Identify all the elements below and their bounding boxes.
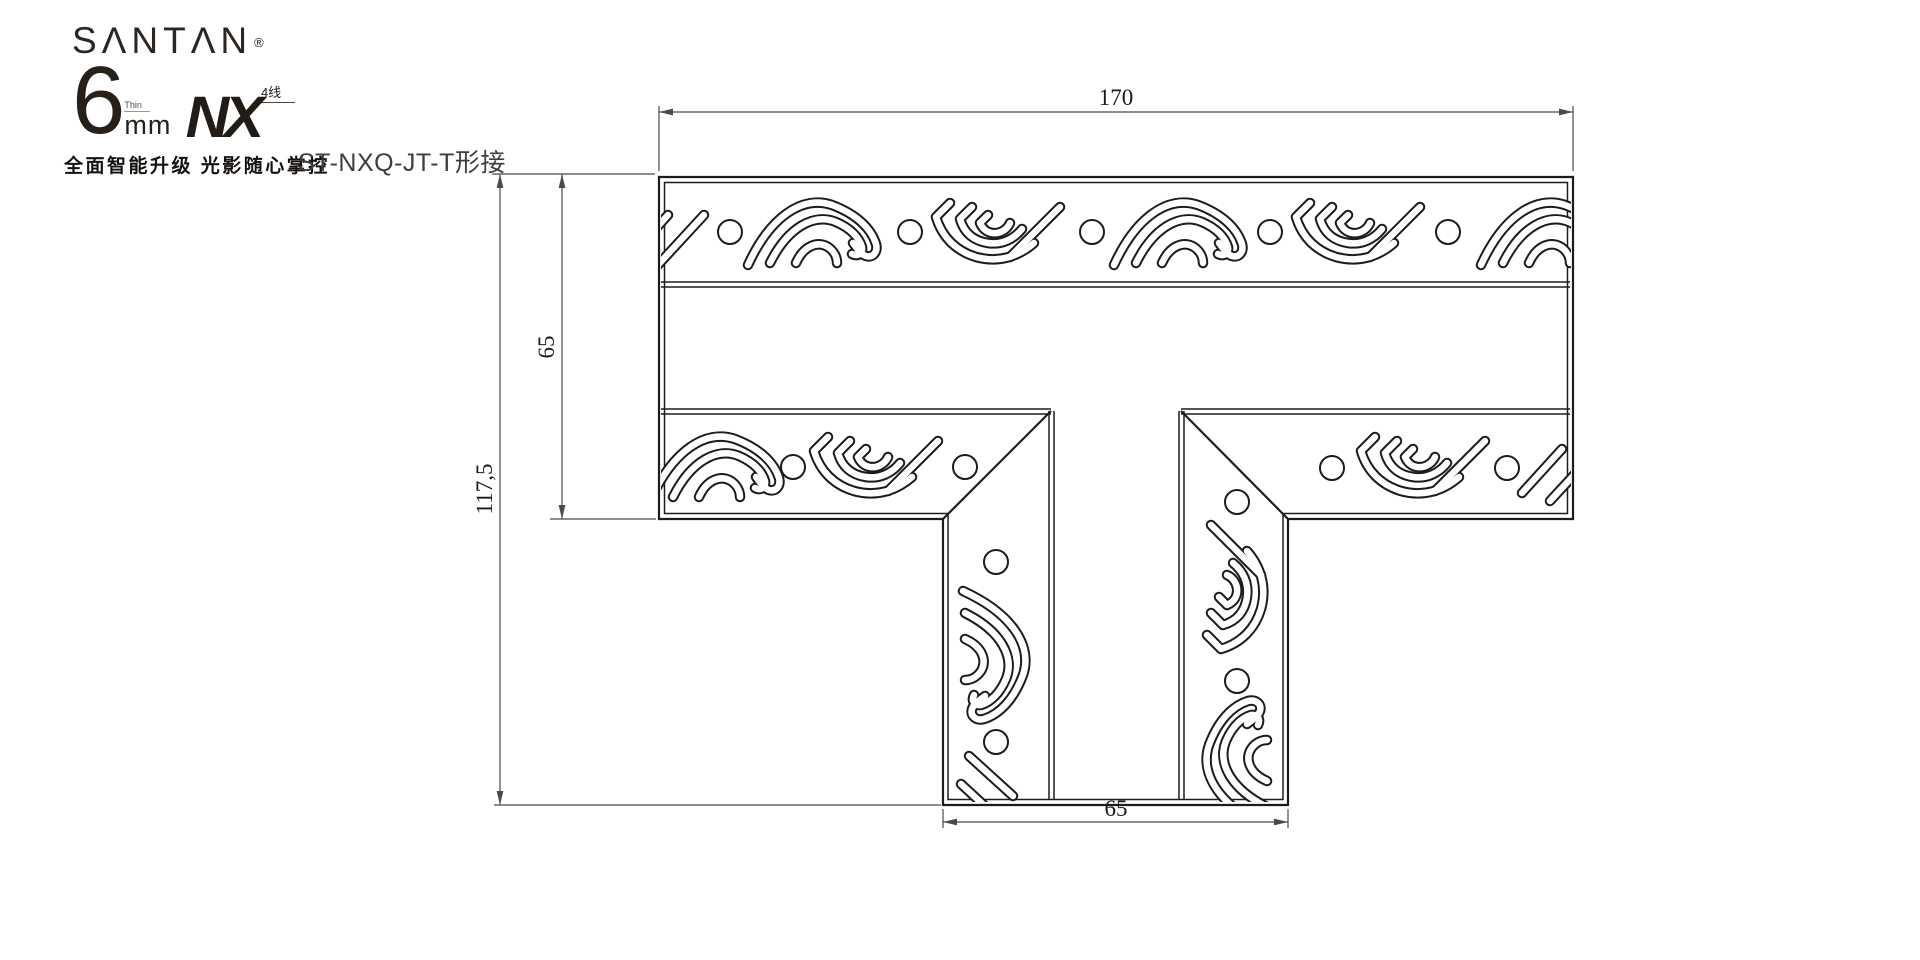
cloud-arch-motif bbox=[748, 203, 876, 265]
pattern-circle bbox=[1225, 490, 1249, 514]
pattern-circle bbox=[1258, 220, 1282, 244]
pattern-circle bbox=[1495, 456, 1519, 480]
dimension-stem-width: 65 bbox=[943, 796, 1288, 828]
miter-joint-lines bbox=[943, 411, 1288, 519]
cloud-arch-motif bbox=[1114, 203, 1242, 265]
pattern-circle bbox=[984, 730, 1008, 754]
dim-arm-depth-label: 65 bbox=[534, 336, 559, 359]
pattern-circle bbox=[898, 220, 922, 244]
cloud-arch-motif bbox=[963, 591, 1025, 719]
pattern-circle bbox=[984, 550, 1008, 574]
pattern-circle bbox=[1436, 220, 1460, 244]
pattern-circle bbox=[953, 455, 977, 479]
channel-line-top bbox=[661, 282, 1570, 287]
pattern-circle bbox=[781, 455, 805, 479]
t-connector-technical-drawing: 170 65 117,5 65 bbox=[0, 0, 1920, 960]
pattern-band-right-arm bbox=[1320, 437, 1598, 501]
dim-top-width-label: 170 bbox=[1099, 85, 1134, 110]
cloud-arch-motif bbox=[1481, 203, 1609, 265]
wave-bracket-motif bbox=[814, 437, 938, 493]
pattern-band-stem-right bbox=[1207, 490, 1269, 829]
pattern-circle bbox=[1225, 669, 1249, 693]
channel-line-bottom bbox=[661, 409, 1570, 414]
pattern-band-stem-left bbox=[961, 550, 1025, 832]
pattern-circle bbox=[1320, 456, 1344, 480]
pattern-band-left-arm bbox=[651, 437, 977, 499]
dimension-top-width: 170 bbox=[659, 85, 1573, 171]
dimension-arm-depth: 65 bbox=[492, 174, 656, 519]
pattern-circle bbox=[718, 220, 742, 244]
stem-channel-lines bbox=[1049, 411, 1184, 799]
cut-slash-motif bbox=[628, 215, 704, 267]
dim-total-height-label: 117,5 bbox=[472, 464, 497, 515]
wave-bracket-motif bbox=[1296, 203, 1420, 259]
cut-slash-motif bbox=[961, 756, 1013, 832]
pattern-band-top bbox=[628, 203, 1609, 267]
wave-bracket-motif bbox=[1361, 437, 1485, 493]
cloud-arch-motif bbox=[651, 437, 779, 499]
pattern-circle bbox=[1080, 220, 1104, 244]
wave-bracket-motif bbox=[1207, 525, 1263, 649]
cloud-arch-motif bbox=[1207, 701, 1269, 829]
cut-slash-motif bbox=[1522, 449, 1598, 501]
wave-bracket-motif bbox=[936, 203, 1060, 259]
dim-stem-width-label: 65 bbox=[1105, 796, 1128, 821]
page-canvas: SΛNTΛN® 6 Thin mm NX 4线 全面智能升级 光影随心掌控 ST… bbox=[0, 0, 1920, 960]
